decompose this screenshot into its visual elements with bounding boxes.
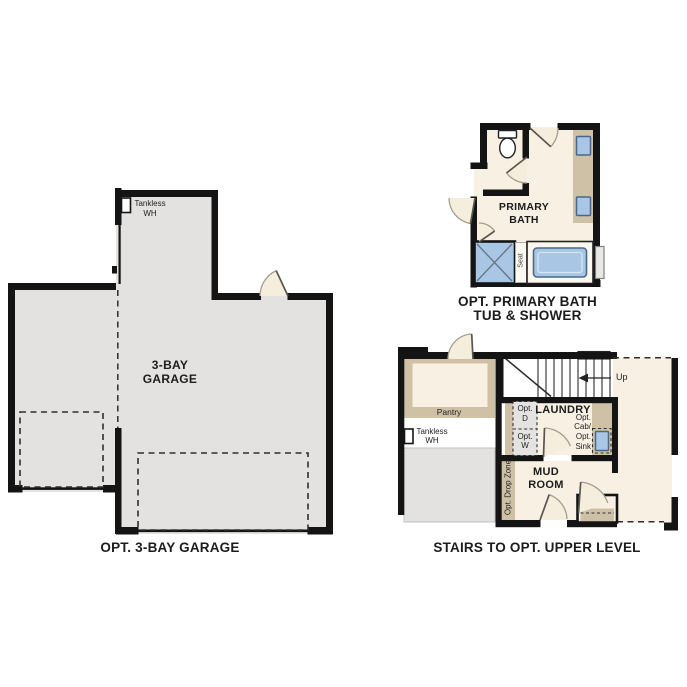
mud-room-label: MUD ROOM (511, 466, 581, 492)
stairs-tankless-label: Tankless WH (412, 427, 452, 446)
drop-zone-label: Opt. Drop Zone (504, 457, 513, 519)
pantry-door-swing (448, 334, 473, 359)
floorplan-drawing (0, 0, 687, 687)
opt-sink (596, 432, 609, 451)
pantry-label: Pantry (424, 407, 474, 417)
pantry-floor (413, 364, 488, 408)
garage-entry-door-swing (260, 271, 288, 296)
shower (475, 242, 516, 284)
opt-dryer-label: Opt. D (513, 404, 537, 423)
garage-tankless-label: Tankless WH (130, 199, 170, 218)
garage-caption: OPT. 3-BAY GARAGE (70, 541, 270, 555)
garage-room-label: 3-BAY GARAGE (115, 358, 225, 386)
vanity-sink-bottom (577, 197, 591, 216)
bath-room-label: PRIMARY BATH (484, 201, 564, 226)
seat-label: Seat (518, 250, 525, 272)
garage-corner-fill (404, 448, 495, 522)
toilet (499, 131, 517, 158)
bath-caption: OPT. PRIMARY BATH TUB & SHOWER (427, 295, 628, 323)
tub-ledge (596, 247, 605, 279)
up-label: Up (616, 372, 636, 382)
opt-washer-label: Opt. W (513, 432, 537, 451)
optional-area-floor (613, 358, 672, 522)
opt-cab-sink-label: Opt. Cab/ Opt. Sink (558, 413, 591, 453)
bath-entry-door-swing (449, 198, 475, 224)
floorplan-sheet: 3-BAY GARAGE Tankless WH OPT. 3-BAY GARA… (0, 0, 687, 687)
bathtub (527, 242, 593, 284)
stairs-caption: STAIRS TO OPT. UPPER LEVEL (417, 541, 657, 555)
vanity-sink-top (577, 137, 591, 156)
